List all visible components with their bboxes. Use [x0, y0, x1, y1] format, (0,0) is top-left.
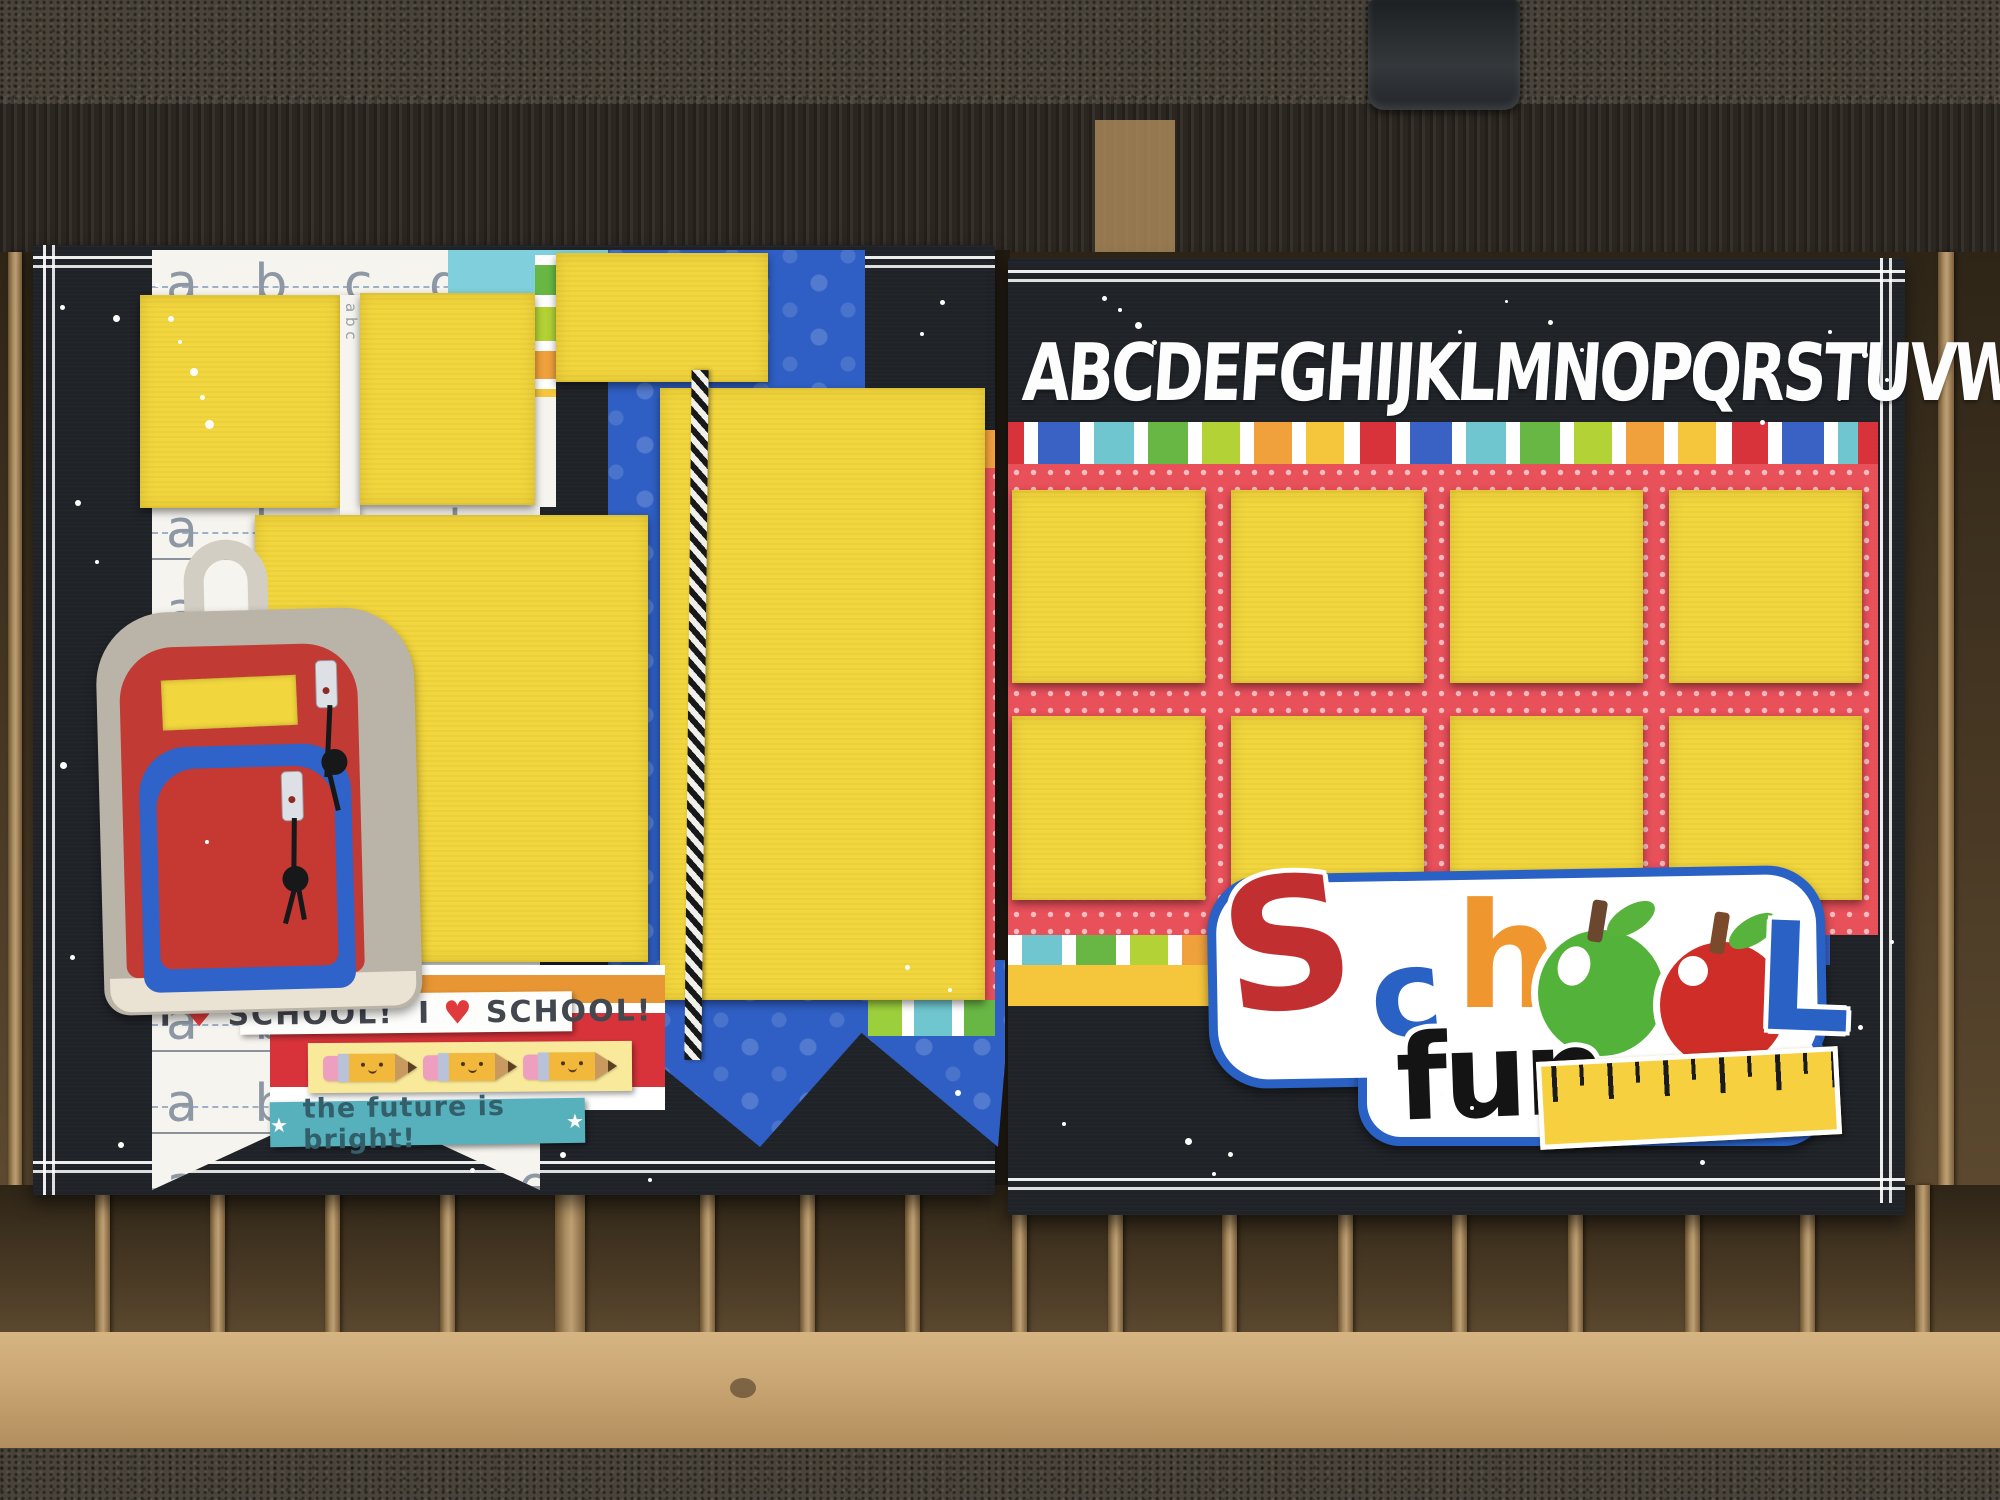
- paint-splatter: [75, 500, 81, 506]
- rail-patch: [1095, 120, 1175, 256]
- sliver-paper: [535, 397, 556, 507]
- photo-mat: [1012, 716, 1205, 900]
- paint-splatter: [1890, 940, 1894, 944]
- paint-splatter: [205, 840, 209, 844]
- paint-splatter: [1185, 1138, 1192, 1145]
- paint-splatter: [1062, 1122, 1066, 1126]
- pencil-icon: [323, 1052, 417, 1083]
- paint-splatter: [648, 1178, 652, 1182]
- paint-splatter: [1440, 1092, 1445, 1097]
- photo-mat-large: [660, 388, 985, 1000]
- zipper-tab: [315, 660, 338, 709]
- backpack-diecut: [76, 473, 435, 1022]
- scrapbook-photo-scene: a b c d e f ga b c d e f ga b c d e f ga…: [0, 0, 2000, 1500]
- yellow-band: [1008, 965, 1240, 1006]
- paint-splatter: [470, 1168, 475, 1173]
- ruler-icon: [1536, 1046, 1842, 1150]
- paint-splatter: [118, 1142, 124, 1148]
- tray-divider: [1915, 1185, 1930, 1335]
- paint-splatter: [60, 762, 67, 769]
- stripe-border-top: [1008, 422, 1878, 464]
- carpet-top: [0, 0, 2000, 104]
- right-page: ABCDEFGHIJKLMNOPQRSTUVWXYZ S c h: [1008, 258, 1905, 1215]
- paint-splatter: [1118, 308, 1122, 312]
- tray-divider: [700, 1185, 715, 1335]
- paint-splatter: [955, 1090, 961, 1096]
- paint-splatter: [1700, 1160, 1705, 1165]
- pencil-sticker-strip: [308, 1041, 632, 1093]
- paint-splatter: [1580, 348, 1584, 352]
- star-icon: ★: [566, 1108, 585, 1132]
- tray-divider: [210, 1185, 225, 1335]
- love-word: SCHOOL!: [486, 993, 653, 1030]
- paint-splatter: [1858, 1025, 1863, 1030]
- backpack-top-pocket: [161, 675, 298, 731]
- photo-mat: [556, 253, 768, 382]
- paint-splatter: [168, 316, 174, 322]
- left-page: a b c d e f ga b c d e f ga b c d e f ga…: [33, 245, 995, 1195]
- tray-divider: [95, 1185, 110, 1335]
- paint-splatter: [1212, 1172, 1216, 1176]
- paint-splatter: [1885, 378, 1889, 382]
- pencil-icon: [423, 1052, 517, 1083]
- paint-splatter: [60, 305, 65, 310]
- alphabet-diecut: ABCDEFGHIJKLMNOPQRSTUVWXYZ: [1020, 328, 2000, 420]
- future-bright-strip: ★ the future is bright! ★: [270, 1098, 586, 1147]
- school-fun-title: S c h L fun: [1208, 870, 1828, 1150]
- pencil-icon: [523, 1051, 617, 1082]
- tray-divider: [440, 1185, 455, 1335]
- title-letter-s: S: [1213, 857, 1363, 1036]
- tray-divider: [800, 1185, 815, 1335]
- tray-divider: [555, 1185, 585, 1335]
- photo-mat: [1231, 490, 1424, 683]
- paint-splatter: [1548, 320, 1553, 325]
- pinstripe-left-edge: [43, 245, 46, 1195]
- future-bright-text: the future is bright!: [303, 1090, 553, 1155]
- paint-splatter: [1228, 1152, 1233, 1157]
- paint-splatter: [113, 315, 120, 322]
- tray-divider: [905, 1185, 920, 1335]
- heart-icon: ♥: [443, 993, 474, 1031]
- paint-splatter: [178, 340, 182, 344]
- pinstripe-bottom-right: [1008, 1178, 1905, 1181]
- rainbow-sliver: [535, 255, 556, 397]
- pinstripe-top-right: [1008, 270, 1905, 273]
- tray-handle: [1368, 0, 1520, 110]
- paint-splatter: [1102, 296, 1107, 301]
- carpet-bottom: [0, 1448, 2000, 1500]
- paint-splatter: [1760, 420, 1765, 425]
- star-icon: ★: [270, 1112, 289, 1136]
- paint-splatter: [560, 1152, 566, 1158]
- photo-mat: [1669, 490, 1862, 683]
- paint-splatter: [1862, 352, 1868, 358]
- paint-splatter: [190, 368, 198, 376]
- paint-splatter: [1458, 330, 1462, 334]
- photo-mat: [1012, 490, 1205, 683]
- paint-splatter: [905, 965, 910, 970]
- paint-splatter: [1135, 322, 1142, 329]
- tray-divider: [325, 1185, 340, 1335]
- paint-splatter: [70, 955, 75, 960]
- paint-splatter: [205, 420, 214, 429]
- paint-splatter: [1505, 300, 1508, 303]
- paint-splatter: [1828, 330, 1832, 334]
- paint-splatter: [920, 332, 924, 336]
- paint-splatter: [95, 560, 99, 564]
- paint-splatter: [1838, 398, 1841, 401]
- paint-splatter: [1470, 1106, 1474, 1110]
- stripe-band-left2: [868, 1000, 995, 1036]
- paint-splatter: [200, 395, 205, 400]
- title-letter-l: L: [1754, 910, 1854, 1048]
- wood-knot: [730, 1378, 756, 1398]
- photo-mat: [1450, 490, 1643, 683]
- tray-bottom-rail: [0, 1332, 2000, 1454]
- divider-left: [8, 252, 22, 1197]
- tray-top-rail: [0, 96, 2000, 256]
- paint-splatter: [1152, 340, 1157, 345]
- backpack-front-pocket-inner: [156, 765, 339, 970]
- paint-splatter: [940, 300, 945, 305]
- paint-splatter: [948, 988, 952, 992]
- paint-splatter: [155, 283, 159, 287]
